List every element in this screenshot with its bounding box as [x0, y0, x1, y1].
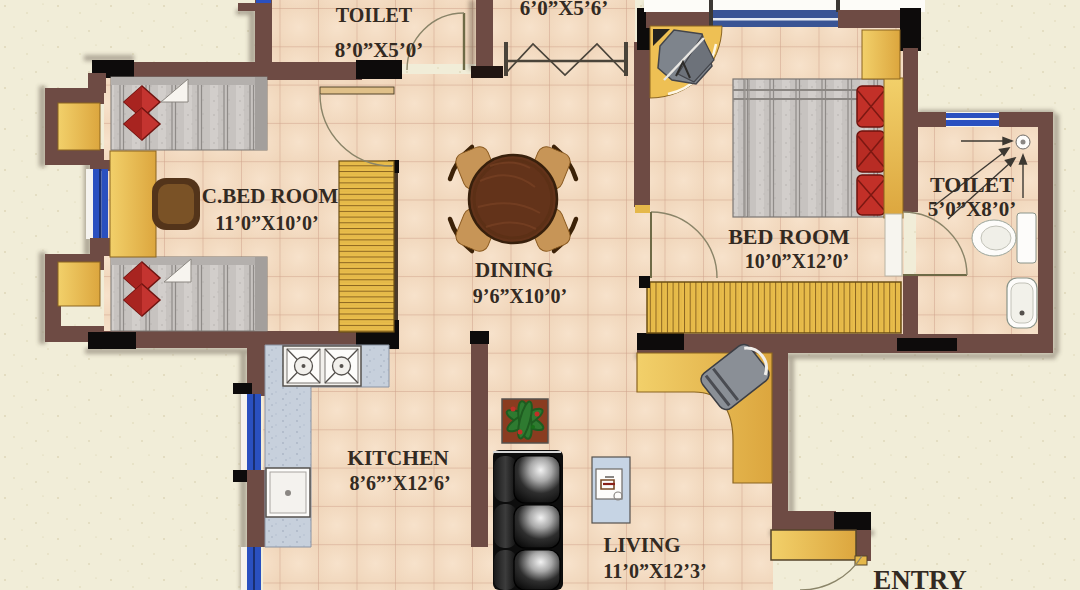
svg-text:6’0”X5’6’: 6’0”X5’6’: [520, 0, 609, 20]
svg-text:KITCHEN: KITCHEN: [347, 446, 449, 470]
svg-text:ENTRY: ENTRY: [873, 565, 967, 590]
svg-text:TOILET: TOILET: [336, 4, 413, 26]
svg-text:C.BED ROOM: C.BED ROOM: [202, 184, 339, 208]
svg-text:8’0”X5’0’: 8’0”X5’0’: [335, 38, 424, 62]
svg-text:11’0”X12’3’: 11’0”X12’3’: [603, 560, 706, 582]
svg-text:8’6”’X12’6’: 8’6”’X12’6’: [349, 472, 450, 494]
svg-text:11’0”X10’0’: 11’0”X10’0’: [215, 212, 318, 234]
svg-text:10’0”X12’0’: 10’0”X12’0’: [745, 250, 849, 272]
svg-text:LIVING: LIVING: [603, 533, 680, 557]
svg-text:DINING: DINING: [475, 258, 553, 282]
svg-text:TOILET: TOILET: [930, 172, 1014, 197]
svg-text:BED ROOM: BED ROOM: [728, 224, 850, 249]
svg-text:5’0”X8’0’: 5’0”X8’0’: [928, 197, 1017, 221]
svg-text:9’6”X10’0’: 9’6”X10’0’: [473, 285, 567, 307]
